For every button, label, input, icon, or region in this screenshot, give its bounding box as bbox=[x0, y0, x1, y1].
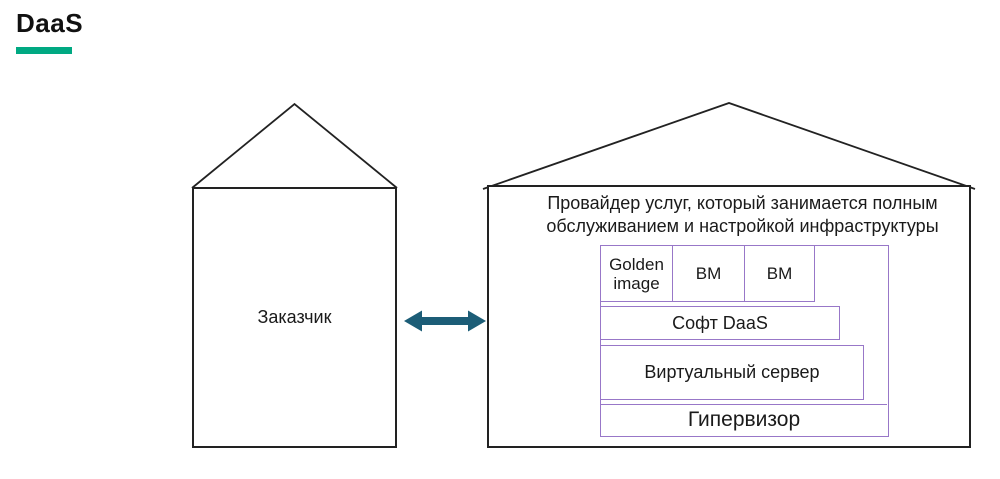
vm-2-label: ВМ bbox=[767, 264, 793, 283]
stack-layer-soft-daas: Софт DaaS bbox=[601, 306, 840, 340]
bidirectional-arrow bbox=[404, 311, 486, 332]
stack-layer-virtual-server: Виртуальный сервер bbox=[601, 345, 864, 400]
customer-house: Заказчик bbox=[192, 187, 397, 448]
provider-house-roof bbox=[483, 103, 975, 189]
slide: DaaS Заказчик Провайдер услуг, который з… bbox=[0, 0, 1000, 479]
title-underline bbox=[16, 47, 72, 54]
stack-top-row: Golden image ВМ ВМ bbox=[601, 246, 888, 302]
infrastructure-stack: Golden image ВМ ВМ Софт DaaS Виртуальный… bbox=[600, 245, 889, 437]
vm-1-label: ВМ bbox=[696, 264, 722, 283]
customer-house-roof bbox=[192, 104, 397, 188]
provider-description: Провайдер услуг, который занимается полн… bbox=[516, 192, 969, 238]
stack-cell-golden-image: Golden image bbox=[601, 246, 673, 302]
stack-layer-hypervisor: Гипервизор bbox=[601, 404, 887, 435]
stack-cell-vm-2: ВМ bbox=[745, 246, 815, 302]
provider-description-line-2: обслуживанием и настройкой инфраструктур… bbox=[516, 215, 969, 238]
page-title: DaaS bbox=[16, 8, 83, 39]
stack-cell-vm-1: ВМ bbox=[673, 246, 745, 302]
golden-image-label: Golden image bbox=[603, 255, 670, 293]
customer-label: Заказчик bbox=[258, 307, 332, 328]
provider-description-line-1: Провайдер услуг, который занимается полн… bbox=[516, 192, 969, 215]
